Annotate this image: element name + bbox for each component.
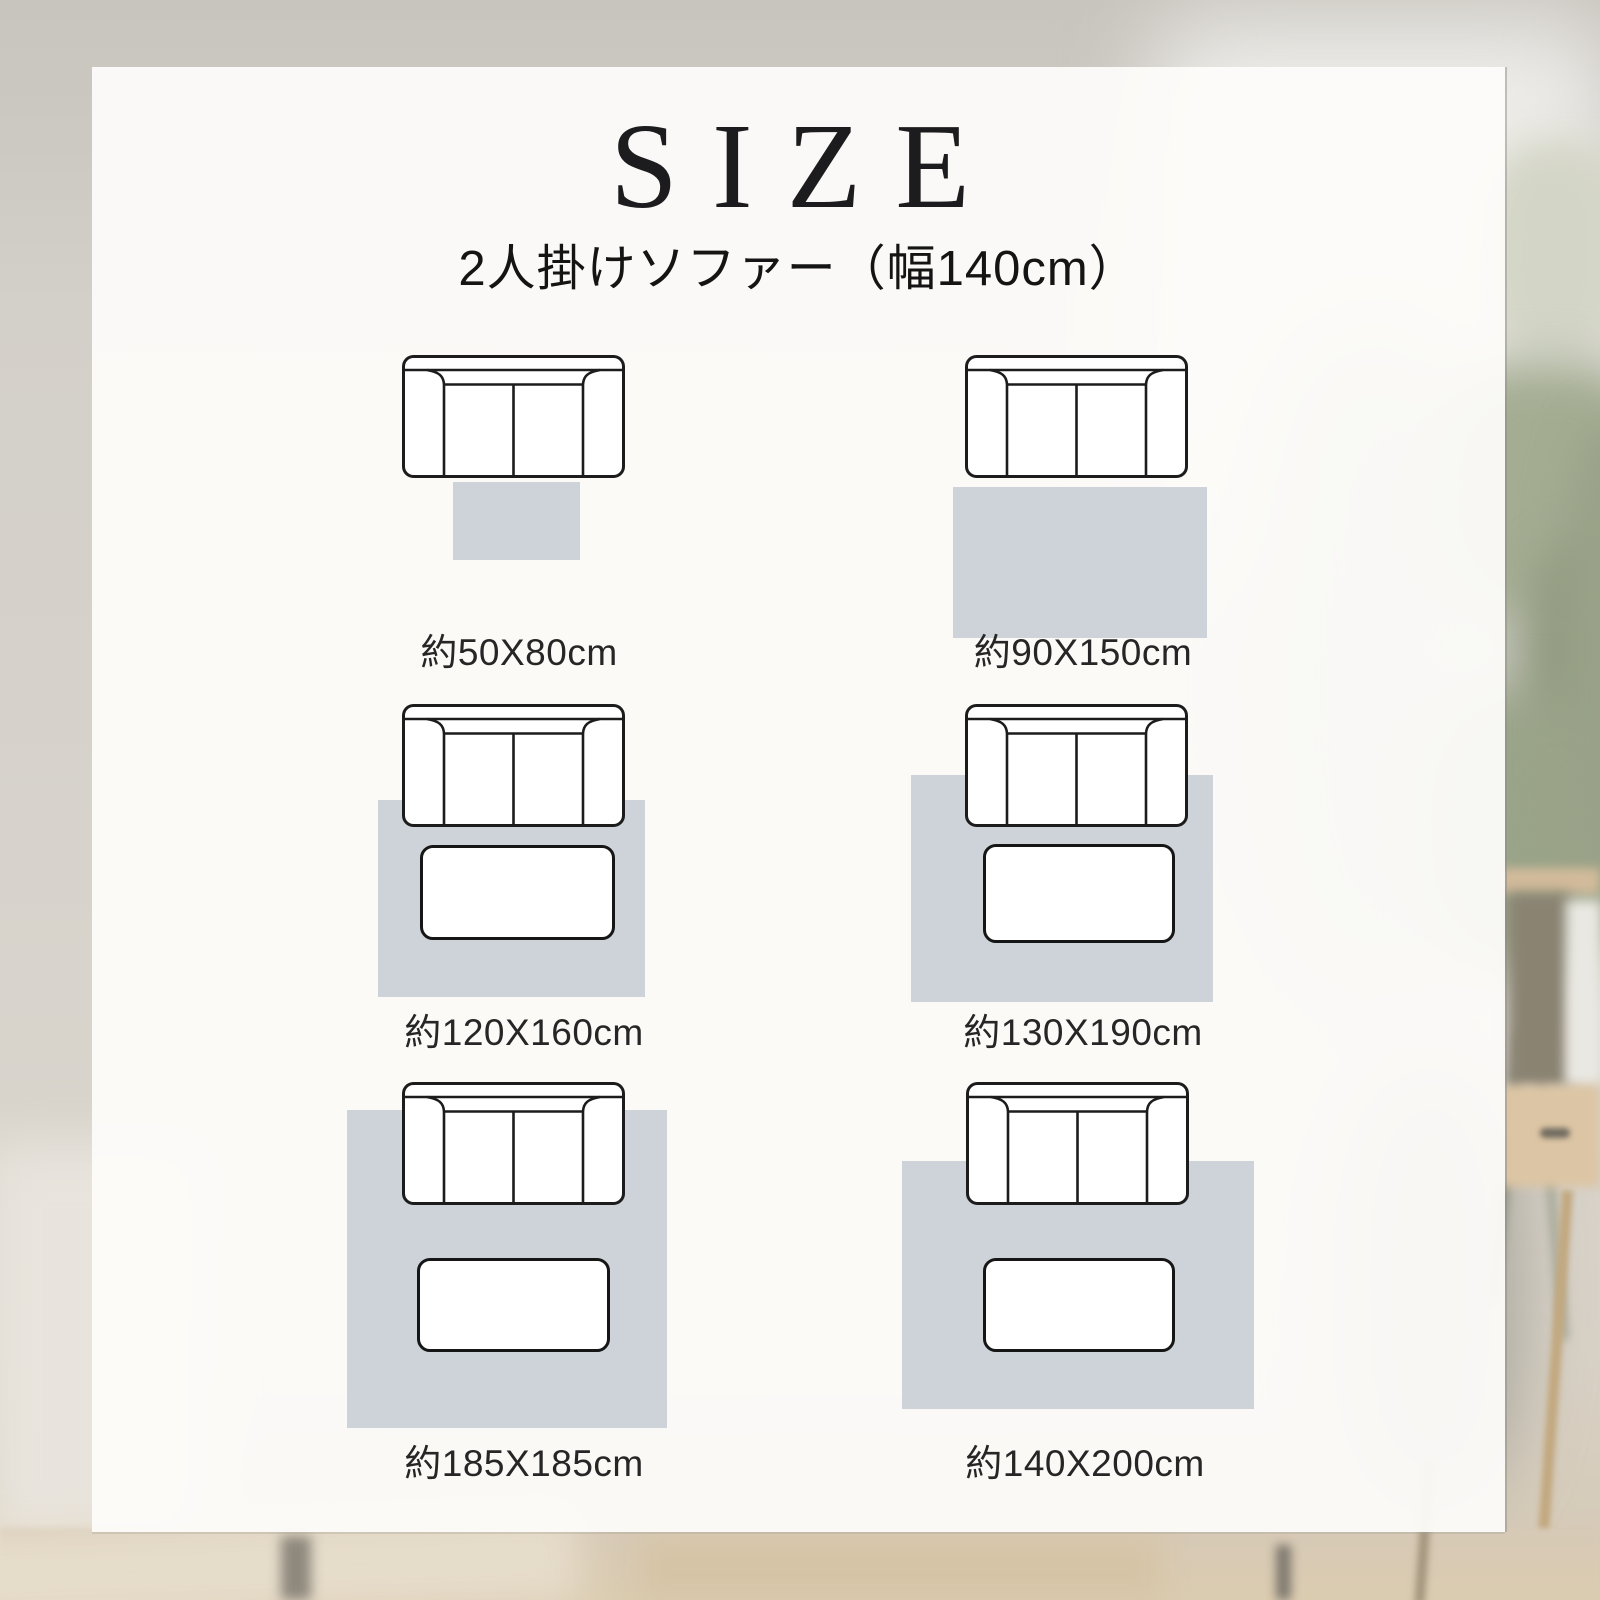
rug-size-guide-image: SIZE 2人掛けソファー（幅140cm） 約50X80cm 約90X150cm… [0,0,1600,1600]
size-label: 約140X200cm [875,1444,1295,1484]
coffee-table-icon [983,1258,1175,1352]
sofa-top-view-icon [966,1082,1189,1205]
size-diagram-140x200: 約140X200cm [0,0,1600,1600]
